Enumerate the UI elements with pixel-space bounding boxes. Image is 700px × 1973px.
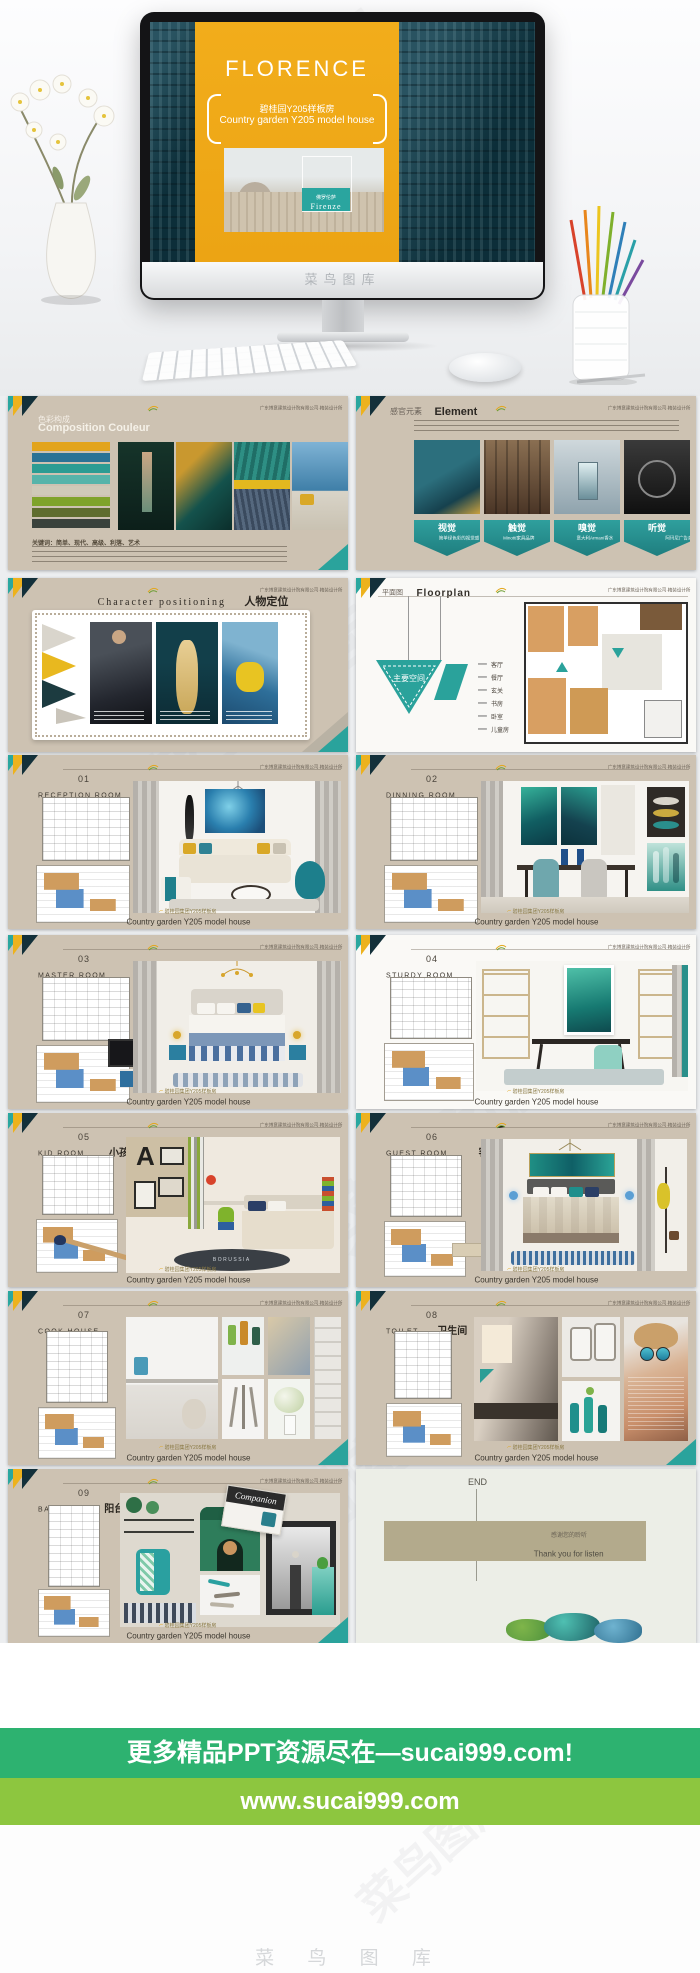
corner-triangles-icon bbox=[356, 755, 386, 775]
photo-jars bbox=[562, 1317, 620, 1377]
paint-stone-teal bbox=[544, 1613, 600, 1641]
bed-sheet bbox=[189, 1015, 285, 1033]
striped-curtain bbox=[188, 1137, 204, 1229]
corner-triangles-icon bbox=[356, 396, 386, 416]
palette-swatch bbox=[32, 442, 110, 451]
photo-bottles bbox=[222, 1317, 264, 1375]
yellow-pillow bbox=[300, 494, 314, 505]
perfume-bottle bbox=[578, 462, 598, 500]
slide-footer: 碧桂园集团Y205样板房 Country garden Y205 model h… bbox=[68, 1441, 308, 1463]
footer-brand-en: Country garden Y205 model house bbox=[126, 919, 250, 926]
glass-jar bbox=[570, 1327, 592, 1361]
navy-knit bbox=[234, 489, 290, 530]
corner-triangles-icon bbox=[8, 1291, 38, 1311]
amber-bottle bbox=[240, 1321, 248, 1345]
slide-footer: 碧桂园集团Y205样板房 Country garden Y205 model h… bbox=[68, 1263, 308, 1285]
logo-swoosh-icon bbox=[507, 909, 512, 913]
vanity-counter bbox=[474, 1403, 558, 1419]
company-logo: 广东博意建筑设计院有限公司·精装设计所 bbox=[495, 1295, 690, 1310]
chin-watermark: 菜鸟图库 bbox=[304, 272, 380, 287]
pillow-teal bbox=[569, 1187, 583, 1197]
pillow-white bbox=[197, 1003, 215, 1014]
logo-swoosh-icon bbox=[495, 763, 507, 771]
thanks-bar: 感谢您的聆听 Thank you for listen bbox=[384, 1521, 646, 1561]
room-list-item: 餐厅 bbox=[491, 675, 503, 682]
footer-brand-cn: 碧桂园集团Y205样板房 bbox=[159, 1089, 217, 1094]
slide-title-en: Floorplan bbox=[416, 588, 471, 599]
slide-title-en: Character positioning bbox=[98, 597, 226, 608]
corner-accent-triangle bbox=[318, 726, 348, 752]
logo-swoosh-icon bbox=[159, 1445, 164, 1449]
photo-gold-glass bbox=[268, 1317, 310, 1375]
footer-brand-en: Country garden Y205 model house bbox=[126, 1099, 250, 1106]
palette-swatch bbox=[32, 508, 110, 517]
table-leg bbox=[625, 870, 628, 898]
company-logo: 广东博意建筑设计院有限公司·精装设计所 bbox=[147, 1117, 342, 1132]
desk bbox=[532, 1039, 630, 1044]
thanks-text: 感谢您的聆听 Thank you for listen bbox=[504, 1526, 634, 1562]
dog bbox=[223, 1541, 237, 1555]
slide-color-composition: 广东博意建筑设计院有限公司·精装设计所 色彩构成 Composition Cou… bbox=[8, 396, 348, 570]
company-name: 广东博意建筑设计院有限公司·精装设计所 bbox=[607, 586, 690, 593]
teal-throw bbox=[165, 877, 176, 901]
hero-section: 菜鸟图库 FLORENCE bbox=[0, 0, 700, 396]
photo-garden-tools bbox=[200, 1575, 260, 1615]
sense-banner-hearing: 听觉阿玛尼广告音乐(Any Other World) bbox=[624, 520, 690, 556]
slide-number: 01 bbox=[78, 774, 90, 784]
plan-bathroom bbox=[644, 700, 682, 738]
plate bbox=[653, 809, 679, 817]
main-space-diagram bbox=[376, 660, 476, 718]
palette-swatch bbox=[32, 519, 110, 528]
room-photo-living bbox=[133, 781, 341, 913]
slide-kid-room: 广东博意建筑设计院有限公司·精装设计所 05 KID ROOM 小孩房 A bbox=[8, 1113, 348, 1287]
plan-dining bbox=[570, 688, 608, 734]
bottom-watermark: 菜 鸟 图 库 bbox=[0, 1943, 700, 1970]
photo-teal-bottles bbox=[562, 1381, 620, 1441]
color-palette bbox=[32, 442, 110, 528]
logo-swoosh-icon bbox=[495, 943, 507, 951]
utensil bbox=[229, 1387, 238, 1427]
teal-pedestal bbox=[312, 1567, 334, 1615]
header-divider bbox=[378, 596, 688, 597]
floorplan-sketch bbox=[46, 1331, 108, 1403]
patterned-towel bbox=[140, 1553, 154, 1591]
floorplan-sketch bbox=[390, 797, 478, 861]
bottom-area: 菜鸟图库 菜 鸟 图 库 bbox=[0, 1825, 700, 1973]
chair-seat-blue bbox=[218, 1222, 234, 1230]
teal-art bbox=[564, 965, 614, 1035]
balcony-collage: Companion bbox=[120, 1493, 340, 1627]
curtain-left bbox=[481, 1139, 503, 1271]
body-text-lines bbox=[32, 546, 287, 564]
thanks-cn: 感谢您的聆听 bbox=[551, 1530, 587, 1539]
main-space-label: 主要空间 bbox=[391, 672, 428, 684]
gold-chandelier bbox=[217, 961, 257, 979]
plan-master bbox=[528, 678, 566, 734]
promo-banner-text[interactable]: 更多精品PPT资源尽在—sucai999.com! bbox=[127, 1739, 573, 1767]
corner-accent-triangle bbox=[318, 544, 348, 570]
monitor-chin: 菜鸟图库 bbox=[142, 262, 543, 298]
gold-lamp-left bbox=[173, 1031, 181, 1039]
chair-back-green bbox=[218, 1207, 234, 1222]
slide-floorplan: 广东博意建筑设计院有限公司·精装设计所 平面图 Floorplan 主要空间 –… bbox=[356, 578, 696, 752]
slide-character-positioning: 广东博意建筑设计院有限公司·精装设计所 Character positionin… bbox=[8, 578, 348, 752]
company-name: 广东博意建筑设计院有限公司·精装设计所 bbox=[259, 1299, 342, 1306]
slide-number: 05 bbox=[78, 1132, 90, 1142]
photo-gold-gems bbox=[176, 442, 232, 530]
pillow-white bbox=[533, 1187, 549, 1197]
corner-triangles-icon bbox=[8, 935, 38, 955]
bed-striped-runner bbox=[189, 1046, 285, 1061]
plan-living bbox=[602, 634, 662, 690]
corner-triangles-icon bbox=[8, 1469, 38, 1489]
logo-swoosh-icon bbox=[507, 1089, 512, 1093]
yellow-band bbox=[234, 480, 290, 489]
photo-man bbox=[90, 622, 152, 724]
pillow-yellow bbox=[257, 843, 270, 854]
logo-swoosh-icon bbox=[147, 1121, 159, 1129]
logo-swoosh-icon bbox=[159, 909, 164, 913]
rug-text: BORUSSIA bbox=[213, 1257, 251, 1263]
teal-art-panel bbox=[521, 787, 557, 845]
room-list-item: 儿童房 bbox=[491, 727, 509, 734]
footer-brand-en: Country garden Y205 model house bbox=[126, 1633, 250, 1640]
sunglasses-lens bbox=[640, 1347, 654, 1361]
sense-banner-touch: 触觉Minotti家具品牌 bbox=[484, 520, 550, 556]
picture-frame bbox=[160, 1147, 184, 1165]
slide-number: 09 bbox=[78, 1488, 90, 1498]
florence-label-en: Firenze bbox=[302, 202, 350, 211]
bed-duvet bbox=[523, 1197, 619, 1237]
bed-throw bbox=[189, 1033, 285, 1046]
record-disc bbox=[638, 460, 676, 498]
bottle bbox=[653, 851, 659, 883]
curtain-right bbox=[672, 965, 682, 1077]
bookshelf-left bbox=[482, 969, 530, 1059]
teal-bottle bbox=[570, 1403, 579, 1433]
big-ben-silhouette bbox=[290, 1565, 301, 1609]
curtain-left bbox=[133, 781, 159, 913]
utensil bbox=[242, 1385, 245, 1429]
corner-accent-triangle bbox=[318, 1439, 348, 1465]
company-name: 广东博意建筑设计院有限公司·精装设计所 bbox=[607, 404, 690, 411]
logo-swoosh-icon bbox=[507, 1445, 512, 1449]
slide-title: Character positioning 人物定位 bbox=[78, 592, 308, 610]
room-photo-kid: A BORUSSIA bbox=[126, 1137, 340, 1273]
corner-accent-triangle bbox=[666, 1439, 696, 1465]
curtain-left bbox=[133, 961, 157, 1093]
teal-bottle bbox=[598, 1405, 607, 1433]
white-hydrangea bbox=[274, 1387, 304, 1413]
slide-footer: 碧桂园集团Y205样板房 Country garden Y205 model h… bbox=[416, 905, 656, 927]
bright-window bbox=[482, 1325, 512, 1363]
slide-title-cn: 人物定位 bbox=[244, 596, 288, 608]
company-name: 广东博意建筑设计院有限公司·精装设计所 bbox=[607, 943, 690, 950]
florence-photo: 佛罗伦萨 Firenze bbox=[224, 148, 384, 232]
photo-utensils bbox=[222, 1379, 264, 1439]
caption-lines bbox=[94, 711, 144, 720]
corner-triangles-icon bbox=[8, 578, 38, 598]
photo-turntable bbox=[624, 440, 690, 514]
tool-trowel bbox=[210, 1602, 234, 1608]
green-bottle bbox=[228, 1325, 236, 1345]
pillow-gray bbox=[273, 843, 286, 854]
website-url[interactable]: www.sucai999.com bbox=[240, 1788, 459, 1815]
footer-brand-cn: 碧桂园集团Y205样板房 bbox=[507, 1089, 565, 1094]
yellow-dress bbox=[657, 1183, 670, 1209]
floorplan-sketch bbox=[42, 1155, 114, 1215]
footer-brand-cn: 碧桂园集团Y205样板房 bbox=[159, 1623, 217, 1628]
pillow-blue bbox=[237, 1003, 251, 1013]
company-name: 广东博意建筑设计院有限公司·精装设计所 bbox=[259, 763, 342, 770]
magazine-title: Companion bbox=[226, 1486, 286, 1511]
corner-triangles-icon bbox=[8, 396, 38, 416]
wall-clock bbox=[206, 1175, 216, 1185]
slide-footer: 碧桂园集团Y205样板房 Country garden Y205 model h… bbox=[68, 1085, 308, 1107]
footer-brand-cn: 碧桂园集团Y205样板房 bbox=[507, 909, 565, 914]
picture-frame bbox=[134, 1181, 156, 1209]
corner-triangles-icon bbox=[356, 1113, 386, 1133]
table-leg bbox=[525, 870, 528, 898]
blue-lamp-left bbox=[509, 1191, 518, 1200]
tool-fork bbox=[214, 1592, 240, 1599]
company-logo: 广东博意建筑设计院有限公司·精装设计所 bbox=[495, 759, 690, 774]
slide-title: 感官元素 Element bbox=[390, 402, 477, 420]
slide-number: 04 bbox=[426, 954, 438, 964]
company-logo: 广东博意建筑设计院有限公司·精装设计所 bbox=[495, 582, 690, 597]
pillow-white bbox=[268, 1201, 286, 1211]
floorplan-sketch bbox=[42, 797, 130, 861]
mouse bbox=[449, 353, 521, 382]
pillow-yellow bbox=[183, 843, 196, 854]
caption-lines bbox=[160, 711, 210, 720]
coat-rack-pole bbox=[665, 1167, 667, 1253]
logo-swoosh-icon bbox=[495, 586, 507, 594]
pillow-yellow bbox=[253, 1003, 265, 1013]
photo-containers bbox=[314, 1317, 341, 1439]
imac-monitor: FLORENCE 碧桂园Y205样板房 Country garden Y205 … bbox=[140, 12, 545, 300]
company-logo: 广东博意建筑设计院有限公司·精装设计所 bbox=[495, 939, 690, 954]
nightstand-left bbox=[169, 1045, 186, 1060]
footer-brand-en: Country garden Y205 model house bbox=[474, 1277, 598, 1284]
bathroom-collage bbox=[474, 1317, 688, 1441]
corner-accent-triangle bbox=[318, 1617, 348, 1643]
armchair-teal bbox=[295, 861, 325, 899]
slide-footer: 碧桂园集团Y205样板房 Country garden Y205 model h… bbox=[68, 905, 308, 927]
cover-title-panel: FLORENCE 碧桂园Y205样板房 Country garden Y205 … bbox=[195, 22, 399, 262]
floorplan-sketch bbox=[390, 1155, 462, 1217]
footer-brand-en: Country garden Y205 model house bbox=[474, 1455, 598, 1462]
pillow-teal bbox=[199, 843, 212, 854]
pencil-cup-decoration bbox=[563, 200, 658, 385]
slide-balcony: 广东博意建筑设计院有限公司·精装设计所 09 BALCONY 阳台 bbox=[8, 1469, 348, 1643]
end-label: END bbox=[468, 1477, 487, 1487]
photo-woman bbox=[156, 622, 218, 724]
wardrobe-texture bbox=[484, 440, 550, 514]
plan-arrow bbox=[556, 662, 568, 672]
photo-bottles bbox=[647, 843, 685, 891]
baseball-helmet bbox=[54, 1235, 66, 1245]
slide-dining-room: 广东博意建筑设计院有限公司·精装设计所 02 DINNING ROOM 餐厅 bbox=[356, 755, 696, 929]
bag bbox=[669, 1231, 679, 1240]
white-band bbox=[0, 1643, 700, 1728]
plan-bedroom bbox=[528, 606, 564, 652]
blue-decor bbox=[134, 1357, 148, 1375]
footer-brand-cn: 碧桂园集团Y205样板房 bbox=[159, 909, 217, 914]
cover-subtitle-cn: 碧桂园Y205样板房 bbox=[195, 102, 399, 115]
company-logo: 广东博意建筑设计院有限公司·精装设计所 bbox=[147, 1295, 342, 1310]
slide-number: 08 bbox=[426, 1310, 438, 1320]
company-name: 广东博意建筑设计院有限公司·精装设计所 bbox=[259, 1477, 342, 1484]
bottle bbox=[663, 847, 669, 883]
yellow-shirt bbox=[236, 662, 264, 692]
slide-number: 02 bbox=[426, 774, 438, 784]
bed bbox=[242, 1211, 334, 1249]
photo-kitchen bbox=[126, 1317, 218, 1439]
sunglasses-lens bbox=[656, 1347, 670, 1361]
pillow-white bbox=[217, 1003, 235, 1014]
slide-guest-room: 广东博意建筑设计院有限公司·精装设计所 06 GUEST ROOM 客卧 bbox=[356, 1113, 696, 1287]
green-rabbit bbox=[317, 1557, 328, 1569]
magazine-photo bbox=[261, 1511, 277, 1527]
kitchen-collage bbox=[126, 1317, 340, 1439]
blue-vase bbox=[561, 849, 568, 865]
cover-photo-right bbox=[399, 22, 535, 262]
model-figure bbox=[142, 452, 152, 512]
plan-arrow bbox=[612, 648, 624, 658]
connector-line bbox=[408, 596, 409, 660]
cover-title: FLORENCE bbox=[195, 56, 399, 82]
logo-swoosh-icon bbox=[147, 943, 159, 951]
railing bbox=[124, 1531, 194, 1533]
company-logo: 广东博意建筑设计院有限公司·精装设计所 bbox=[147, 759, 342, 774]
plate bbox=[653, 821, 679, 829]
green-flower bbox=[586, 1387, 594, 1395]
sense-banner-visual: 视觉简单绿色彩的视觉感 bbox=[414, 520, 480, 556]
slide-kitchen: 广东博意建筑设计院有限公司·精装设计所 07 COOK HOUSE 厨房 bbox=[8, 1291, 348, 1465]
palette-swatch bbox=[32, 486, 110, 495]
room-photo-master bbox=[133, 961, 341, 1093]
photo-teal-fabric bbox=[234, 442, 290, 530]
footer-brand-en: Country garden Y205 model house bbox=[126, 1277, 250, 1284]
company-logo: 广东博意建筑设计院有限公司·精装设计所 bbox=[147, 1473, 342, 1488]
floorplan-sketch bbox=[394, 1331, 452, 1399]
slide-number: 06 bbox=[426, 1132, 438, 1142]
photo-flowers bbox=[268, 1379, 310, 1439]
slide-title: 平面图 Floorplan bbox=[382, 583, 471, 601]
room-photo-study bbox=[476, 961, 688, 1091]
florence-label-cn: 佛罗伦萨 bbox=[314, 193, 338, 201]
room-list: – 客厅 – 餐厅 – 玄关 – 书房 – 卧室 – 儿童房 bbox=[478, 658, 521, 736]
florence-label: 佛罗伦萨 Firenze bbox=[302, 188, 350, 211]
teal-art-panel bbox=[561, 787, 597, 845]
cover-subtitle-en: Country garden Y205 model house bbox=[195, 115, 399, 126]
floorplan-sketch bbox=[390, 977, 472, 1039]
logo-swoosh-icon bbox=[159, 1623, 164, 1627]
palette-swatch bbox=[32, 475, 110, 484]
logo-swoosh-icon bbox=[159, 1089, 164, 1093]
chandelier bbox=[553, 1139, 587, 1153]
nightstand-right bbox=[289, 1045, 306, 1060]
glass-vase bbox=[284, 1415, 296, 1435]
sofa-seat bbox=[179, 855, 291, 883]
utensil bbox=[249, 1387, 258, 1427]
website-banner[interactable]: www.sucai999.com bbox=[0, 1778, 700, 1825]
pillow-navy bbox=[585, 1187, 599, 1197]
chair-teal bbox=[533, 859, 559, 899]
wall-decor-photo: A bbox=[126, 1137, 188, 1217]
logo-swoosh-icon bbox=[159, 1267, 164, 1271]
caption-lines bbox=[226, 711, 272, 720]
photo-shower-woman bbox=[624, 1317, 688, 1441]
bottle bbox=[673, 853, 679, 883]
rug bbox=[504, 1069, 664, 1085]
logo-swoosh-icon bbox=[495, 404, 507, 412]
curtain-right bbox=[637, 1139, 655, 1271]
logo-swoosh-icon bbox=[147, 404, 159, 412]
footer-brand-en: Country garden Y205 model house bbox=[474, 1099, 598, 1106]
slide-thumbnails-grid: 菜鸟图库 菜鸟图库 菜鸟图库 广东博意建筑设计院有限公司·精装设计所 色彩构成 … bbox=[0, 396, 700, 1643]
chair-gray bbox=[581, 859, 607, 899]
curtain-right bbox=[317, 961, 341, 1093]
photo-vanity bbox=[474, 1317, 558, 1441]
slide-footer: 碧桂园集团Y205样板房 Country garden Y205 model h… bbox=[416, 1263, 656, 1285]
teal-art-wide bbox=[529, 1153, 615, 1177]
teal-curtain-strip bbox=[682, 965, 688, 1077]
window-light bbox=[601, 785, 635, 855]
folding-chair-teal bbox=[136, 1549, 170, 1595]
photo-visual-collage bbox=[414, 440, 480, 514]
company-logo: 广东博意建筑设计院有限公司·精装设计所 bbox=[147, 400, 342, 415]
room-list-item: 玄关 bbox=[491, 688, 503, 695]
floor-lamp bbox=[185, 795, 194, 843]
slide-footer: 碧桂园集团Y205样板房 Country garden Y205 model h… bbox=[416, 1441, 656, 1463]
plant bbox=[126, 1497, 142, 1513]
photo-boy bbox=[222, 622, 278, 724]
logo-swoosh-icon bbox=[507, 1267, 512, 1271]
plan-bedroom2 bbox=[568, 606, 598, 646]
blue-lamp-right bbox=[625, 1191, 634, 1200]
sense-banner-smell: 嗅觉意大利Armani香水 bbox=[554, 520, 620, 556]
floorplan-sketch bbox=[48, 1505, 100, 1587]
diagonal-watermark: 菜鸟图库 bbox=[342, 1825, 523, 1934]
slide-study-room: 广东博意建筑设计院有限公司·精装设计所 04 STURDY ROOM 书房 碧桂… bbox=[356, 935, 696, 1109]
company-logo: 广东博意建筑设计院有限公司·精装设计所 bbox=[147, 939, 342, 954]
photo-fashion-model bbox=[118, 442, 174, 530]
slide-footer: 碧桂园集团Y205样板房 Country garden Y205 model h… bbox=[416, 1085, 656, 1107]
body-text-lines bbox=[414, 420, 679, 434]
monitor-stand-neck bbox=[322, 300, 364, 334]
corner-triangles-icon bbox=[356, 1291, 386, 1311]
paint-stone-blue bbox=[594, 1619, 642, 1643]
keyboard bbox=[142, 340, 357, 381]
slide-element: 广东博意建筑设计院有限公司·精装设计所 感官元素 Element 视觉简单绿色彩… bbox=[356, 396, 696, 570]
logo-swoosh-icon bbox=[147, 763, 159, 771]
monitor-screen: FLORENCE 碧桂园Y205样板房 Country garden Y205 … bbox=[150, 22, 535, 262]
room-photo-guest bbox=[481, 1139, 687, 1271]
logo-swoosh-icon bbox=[147, 1299, 159, 1307]
promo-banner[interactable]: 更多精品PPT资源尽在—sucai999.com! bbox=[0, 1728, 700, 1778]
picture-frame bbox=[158, 1177, 184, 1197]
slide-footer: 碧桂园集团Y205样板房 Country garden Y205 model h… bbox=[68, 1619, 308, 1641]
slide-number: 07 bbox=[78, 1310, 90, 1320]
company-name: 广东博意建筑设计院有限公司·精装设计所 bbox=[259, 404, 342, 411]
logo-swoosh-icon bbox=[495, 1121, 507, 1129]
footer-brand-cn: 碧桂园集团Y205样板房 bbox=[159, 1267, 217, 1272]
glass-jar bbox=[594, 1323, 616, 1361]
slide-end: END 感谢您的聆听 Thank you for listen bbox=[356, 1469, 696, 1643]
